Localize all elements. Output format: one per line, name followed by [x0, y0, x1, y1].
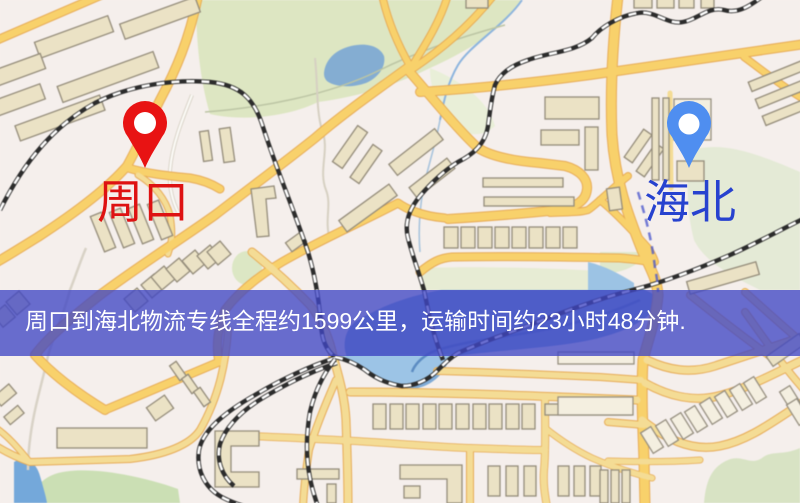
svg-text:海北: 海北 [644, 176, 736, 228]
svg-text:周口: 周口 [97, 176, 189, 228]
svg-text:周口到海北物流专线全程约1599公里，运输时间约23小时48: 周口到海北物流专线全程约1599公里，运输时间约23小时48分钟. [25, 308, 686, 334]
